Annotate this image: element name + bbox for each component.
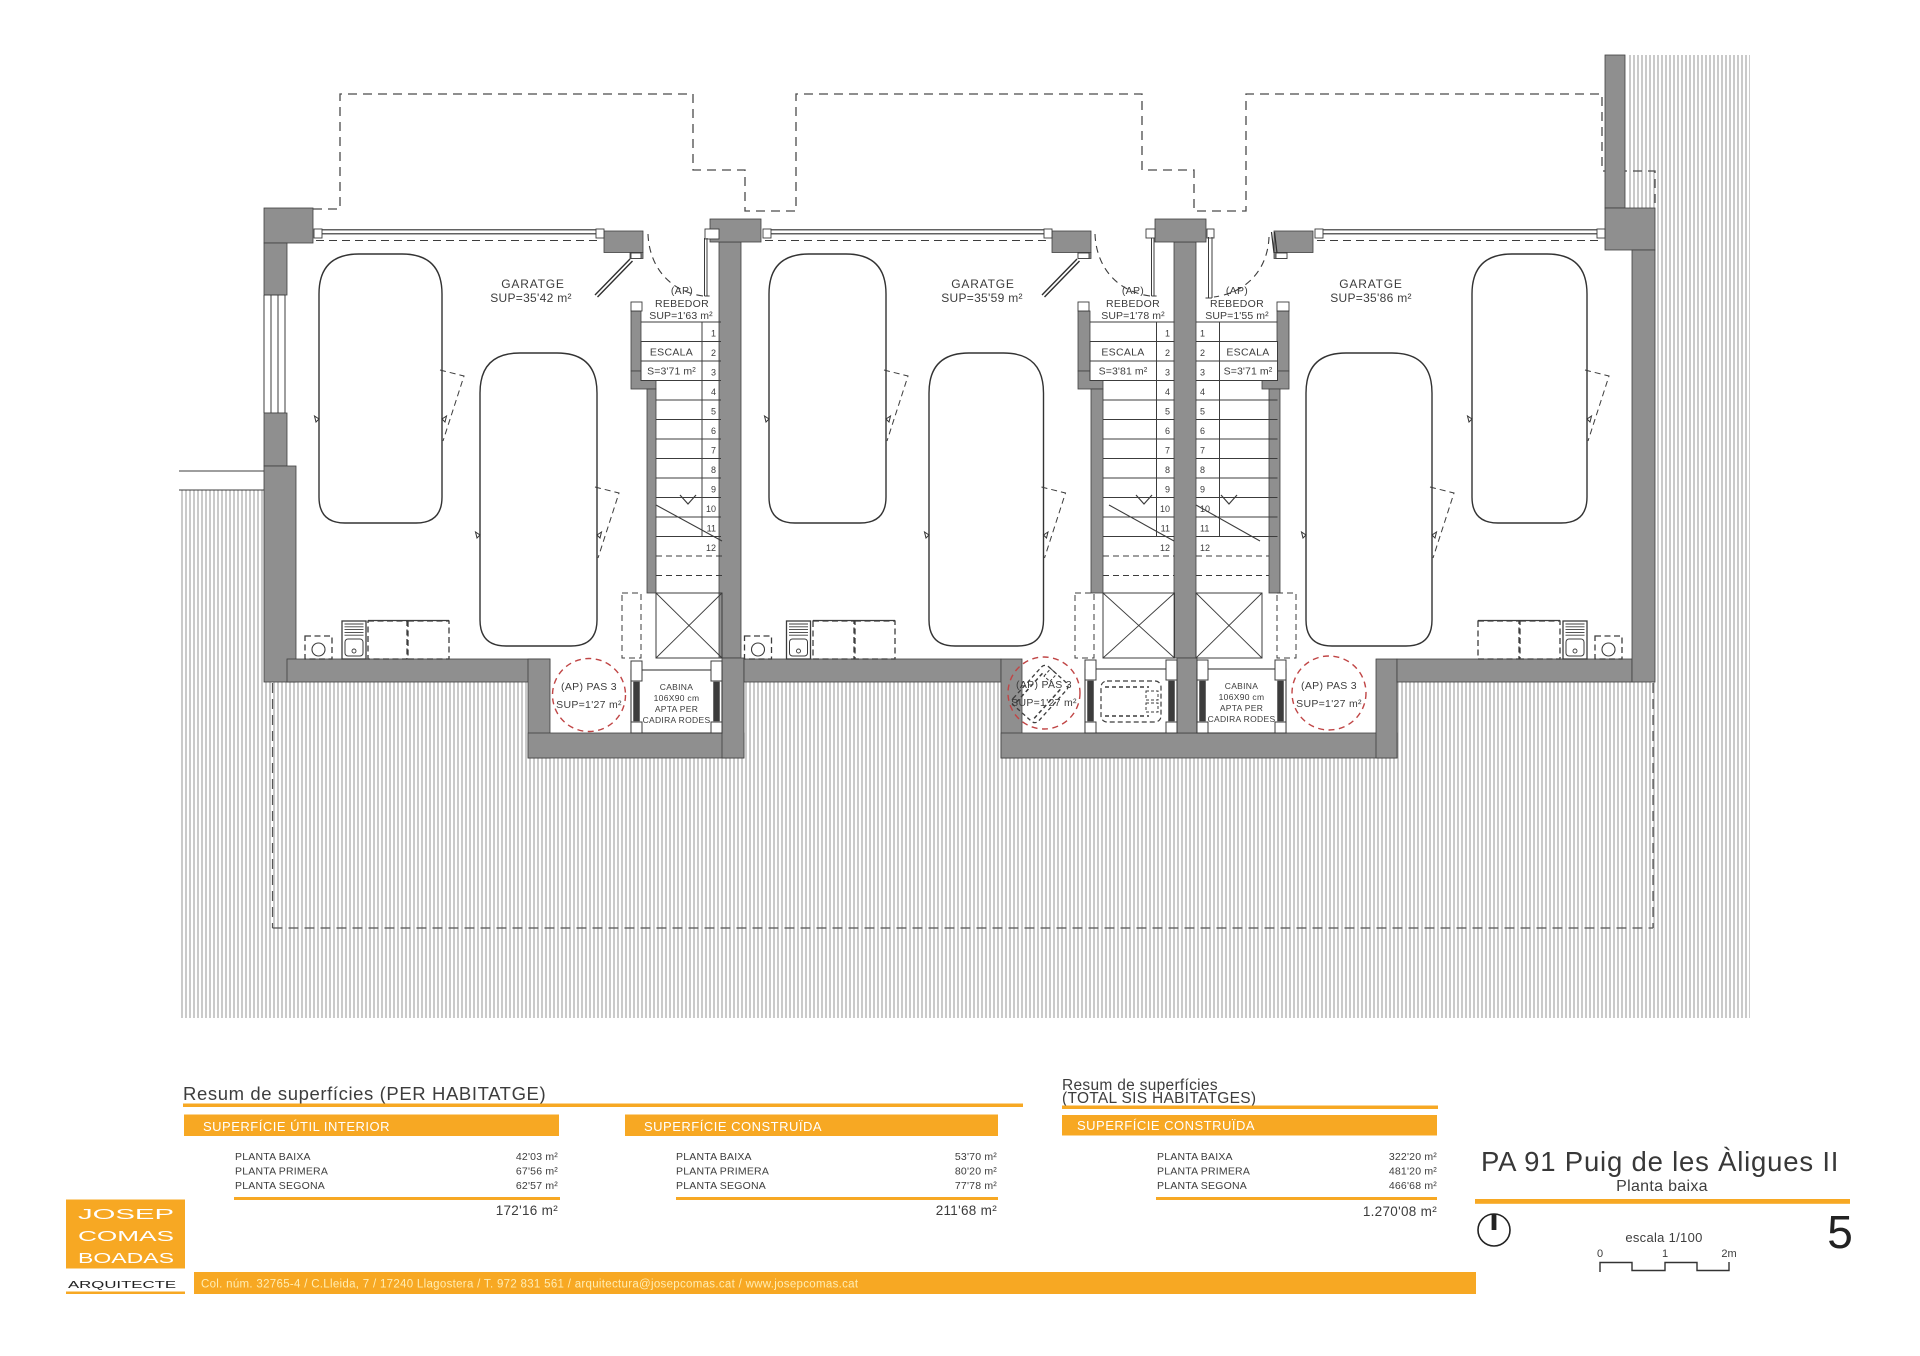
svg-text:67'56 m²: 67'56 m² <box>516 1166 558 1178</box>
svg-text:BOADAS: BOADAS <box>78 1250 174 1267</box>
svg-text:S=3'81 m²: S=3'81 m² <box>1099 366 1148 378</box>
svg-text:2: 2 <box>1200 348 1205 358</box>
svg-text:1: 1 <box>1662 1248 1668 1260</box>
svg-text:1: 1 <box>1165 329 1170 339</box>
svg-text:(AP): (AP) <box>671 285 693 297</box>
svg-text:(TOTAL SIS HABITATGES): (TOTAL SIS HABITATGES) <box>1062 1090 1256 1107</box>
svg-text:S=3'71 m²: S=3'71 m² <box>647 366 696 378</box>
svg-text:ESCALA: ESCALA <box>1101 347 1144 359</box>
svg-text:1: 1 <box>711 329 716 339</box>
svg-text:10: 10 <box>1160 504 1170 514</box>
svg-text:PLANTA SEGONA: PLANTA SEGONA <box>676 1180 766 1192</box>
svg-text:PLANTA SEGONA: PLANTA SEGONA <box>1157 1180 1247 1192</box>
svg-text:53'70 m²: 53'70 m² <box>955 1151 997 1163</box>
svg-text:COMAS: COMAS <box>78 1228 174 1245</box>
svg-text:7: 7 <box>1165 446 1170 456</box>
svg-text:APTA PER: APTA PER <box>655 704 698 714</box>
svg-text:322'20 m²: 322'20 m² <box>1389 1151 1437 1163</box>
svg-text:481'20 m²: 481'20 m² <box>1389 1166 1437 1178</box>
svg-text:12: 12 <box>1160 543 1170 553</box>
svg-text:SUP=1'78 m²: SUP=1'78 m² <box>1101 310 1165 322</box>
svg-text:42'03 m²: 42'03 m² <box>516 1151 558 1163</box>
svg-text:Col. núm. 32765-4 / C.Lleida,: Col. núm. 32765-4 / C.Lleida, 7 / 17240 … <box>201 1279 859 1291</box>
svg-text:PLANTA BAIXA: PLANTA BAIXA <box>235 1151 311 1163</box>
svg-text:(AP): (AP) <box>1226 285 1248 297</box>
svg-text:9: 9 <box>1200 485 1205 495</box>
svg-text:GARATGE: GARATGE <box>1339 277 1402 291</box>
svg-text:ESCALA: ESCALA <box>650 347 693 359</box>
svg-text:ARQUITECTE: ARQUITECTE <box>68 1279 176 1291</box>
svg-text:2: 2 <box>1165 348 1170 358</box>
svg-text:GARATGE: GARATGE <box>501 277 564 291</box>
svg-text:REBEDOR: REBEDOR <box>1210 298 1264 310</box>
svg-text:7: 7 <box>711 446 716 456</box>
svg-text:SUP=35'86 m²: SUP=35'86 m² <box>1330 291 1412 305</box>
svg-text:5: 5 <box>711 407 716 417</box>
svg-text:REBEDOR: REBEDOR <box>655 298 709 310</box>
svg-text:(AP) PAS 3: (AP) PAS 3 <box>561 681 617 693</box>
svg-text:(AP) PAS 3: (AP) PAS 3 <box>1301 680 1357 692</box>
svg-text:11: 11 <box>707 524 716 534</box>
svg-text:7: 7 <box>1200 446 1205 456</box>
svg-text:6: 6 <box>711 426 716 436</box>
svg-text:8: 8 <box>1165 465 1170 475</box>
svg-text:SUP=1'27 m²: SUP=1'27 m² <box>1296 698 1362 710</box>
svg-text:SUPERFÍCIE ÚTIL INTERIOR: SUPERFÍCIE ÚTIL INTERIOR <box>203 1119 390 1134</box>
svg-text:CADIRA RODES: CADIRA RODES <box>643 715 711 725</box>
svg-text:62'57 m²: 62'57 m² <box>516 1180 558 1192</box>
svg-text:172'16 m²: 172'16 m² <box>496 1203 559 1218</box>
svg-text:3: 3 <box>711 368 716 378</box>
svg-text:211'68 m²: 211'68 m² <box>936 1203 998 1218</box>
svg-text:466'68 m²: 466'68 m² <box>1389 1180 1437 1192</box>
svg-text:80'20 m²: 80'20 m² <box>955 1166 997 1178</box>
svg-text:11: 11 <box>1161 524 1170 534</box>
svg-text:GARATGE: GARATGE <box>951 277 1014 291</box>
svg-text:4: 4 <box>711 387 716 397</box>
svg-text:PLANTA BAIXA: PLANTA BAIXA <box>676 1151 752 1163</box>
svg-text:PLANTA PRIMERA: PLANTA PRIMERA <box>1157 1166 1250 1178</box>
svg-text:SUP=35'59 m²: SUP=35'59 m² <box>941 291 1023 305</box>
svg-text:SUP=1'27 m²: SUP=1'27 m² <box>556 699 622 711</box>
svg-text:PA 91 Puig de les Àligues II: PA 91 Puig de les Àligues II <box>1481 1146 1839 1177</box>
svg-text:escala 1/100: escala 1/100 <box>1625 1230 1702 1245</box>
svg-text:3: 3 <box>1165 368 1170 378</box>
svg-text:12: 12 <box>1200 543 1210 553</box>
svg-text:5: 5 <box>1200 407 1205 417</box>
svg-text:PLANTA BAIXA: PLANTA BAIXA <box>1157 1151 1233 1163</box>
svg-text:2m: 2m <box>1721 1248 1736 1260</box>
svg-text:77'78 m²: 77'78 m² <box>955 1180 997 1192</box>
svg-text:1.270'08 m²: 1.270'08 m² <box>1363 1204 1437 1219</box>
svg-text:CADIRA RODES: CADIRA RODES <box>1208 714 1276 724</box>
svg-text:106X90 cm: 106X90 cm <box>1219 692 1265 702</box>
svg-text:2: 2 <box>711 348 716 358</box>
svg-text:CABINA: CABINA <box>660 682 693 692</box>
svg-text:CABINA: CABINA <box>1225 681 1258 691</box>
svg-text:5: 5 <box>1165 407 1170 417</box>
svg-text:1: 1 <box>1200 329 1205 339</box>
svg-text:SUPERFÍCIE CONSTRUÏDA: SUPERFÍCIE CONSTRUÏDA <box>1077 1118 1255 1133</box>
svg-text:PLANTA PRIMERA: PLANTA PRIMERA <box>235 1166 328 1178</box>
svg-text:SUP=35'42 m²: SUP=35'42 m² <box>490 291 572 305</box>
svg-text:APTA PER: APTA PER <box>1220 703 1263 713</box>
svg-text:ESCALA: ESCALA <box>1226 347 1269 359</box>
svg-text:0: 0 <box>1597 1248 1603 1260</box>
svg-text:106X90 cm: 106X90 cm <box>654 693 700 703</box>
svg-text:JOSEP: JOSEP <box>78 1206 174 1223</box>
svg-text:PLANTA SEGONA: PLANTA SEGONA <box>235 1180 325 1192</box>
svg-text:Resum de superfícies (PER HABI: Resum de superfícies (PER HABITATGE) <box>183 1083 546 1104</box>
svg-text:4: 4 <box>1165 387 1170 397</box>
svg-text:9: 9 <box>711 485 716 495</box>
svg-text:11: 11 <box>1200 524 1209 534</box>
svg-text:REBEDOR: REBEDOR <box>1106 298 1160 310</box>
svg-text:SUP=1'63 m²: SUP=1'63 m² <box>649 310 713 322</box>
svg-text:(AP): (AP) <box>1122 285 1144 297</box>
svg-text:SUP=1'55 m²: SUP=1'55 m² <box>1205 310 1269 322</box>
svg-text:Planta baixa: Planta baixa <box>1616 1178 1708 1195</box>
svg-text:10: 10 <box>706 504 716 514</box>
svg-text:SUPERFÍCIE CONSTRUÏDA: SUPERFÍCIE CONSTRUÏDA <box>644 1119 822 1134</box>
svg-text:8: 8 <box>1200 465 1205 475</box>
svg-text:3: 3 <box>1200 368 1205 378</box>
svg-text:SUP=1'27 m²: SUP=1'27 m² <box>1011 697 1077 709</box>
svg-text:12: 12 <box>706 543 716 553</box>
svg-text:PLANTA PRIMERA: PLANTA PRIMERA <box>676 1166 769 1178</box>
svg-text:9: 9 <box>1165 485 1170 495</box>
svg-text:5: 5 <box>1827 1206 1853 1258</box>
svg-text:8: 8 <box>711 465 716 475</box>
svg-text:(AP) PAS 3: (AP) PAS 3 <box>1016 679 1072 691</box>
svg-text:S=3'71 m²: S=3'71 m² <box>1224 366 1273 378</box>
svg-text:4: 4 <box>1200 387 1205 397</box>
svg-text:6: 6 <box>1200 426 1205 436</box>
svg-text:6: 6 <box>1165 426 1170 436</box>
